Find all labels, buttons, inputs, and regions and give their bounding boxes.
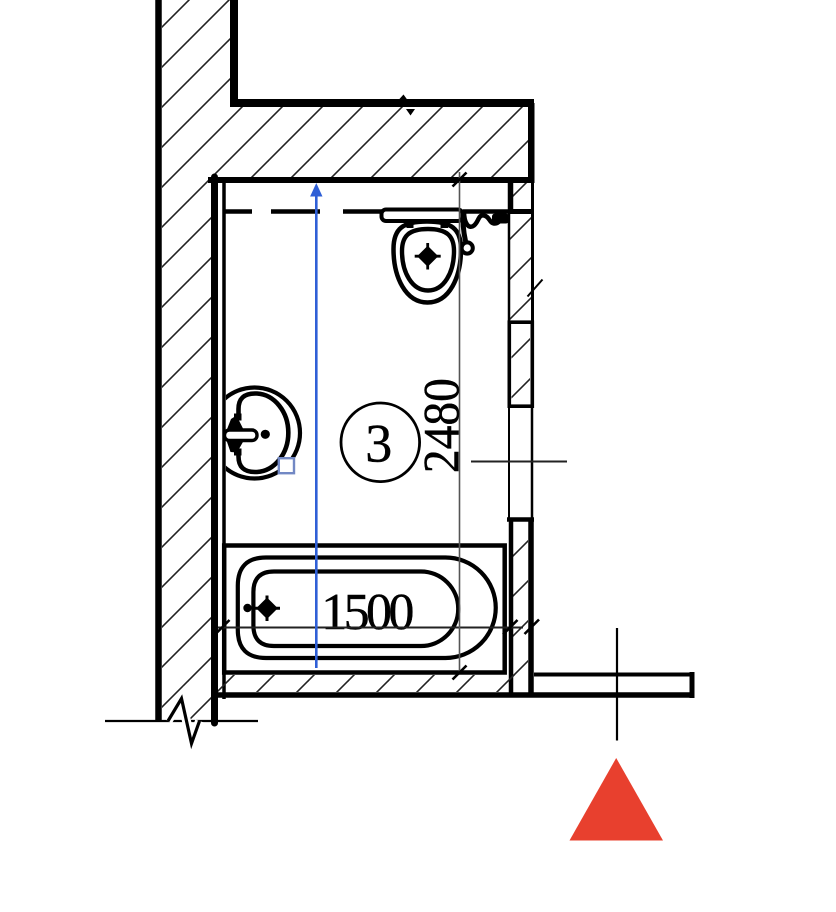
svg-text:3: 3 [365,414,392,474]
svg-text:1500: 1500 [321,584,413,641]
svg-text:2480: 2480 [413,378,469,473]
